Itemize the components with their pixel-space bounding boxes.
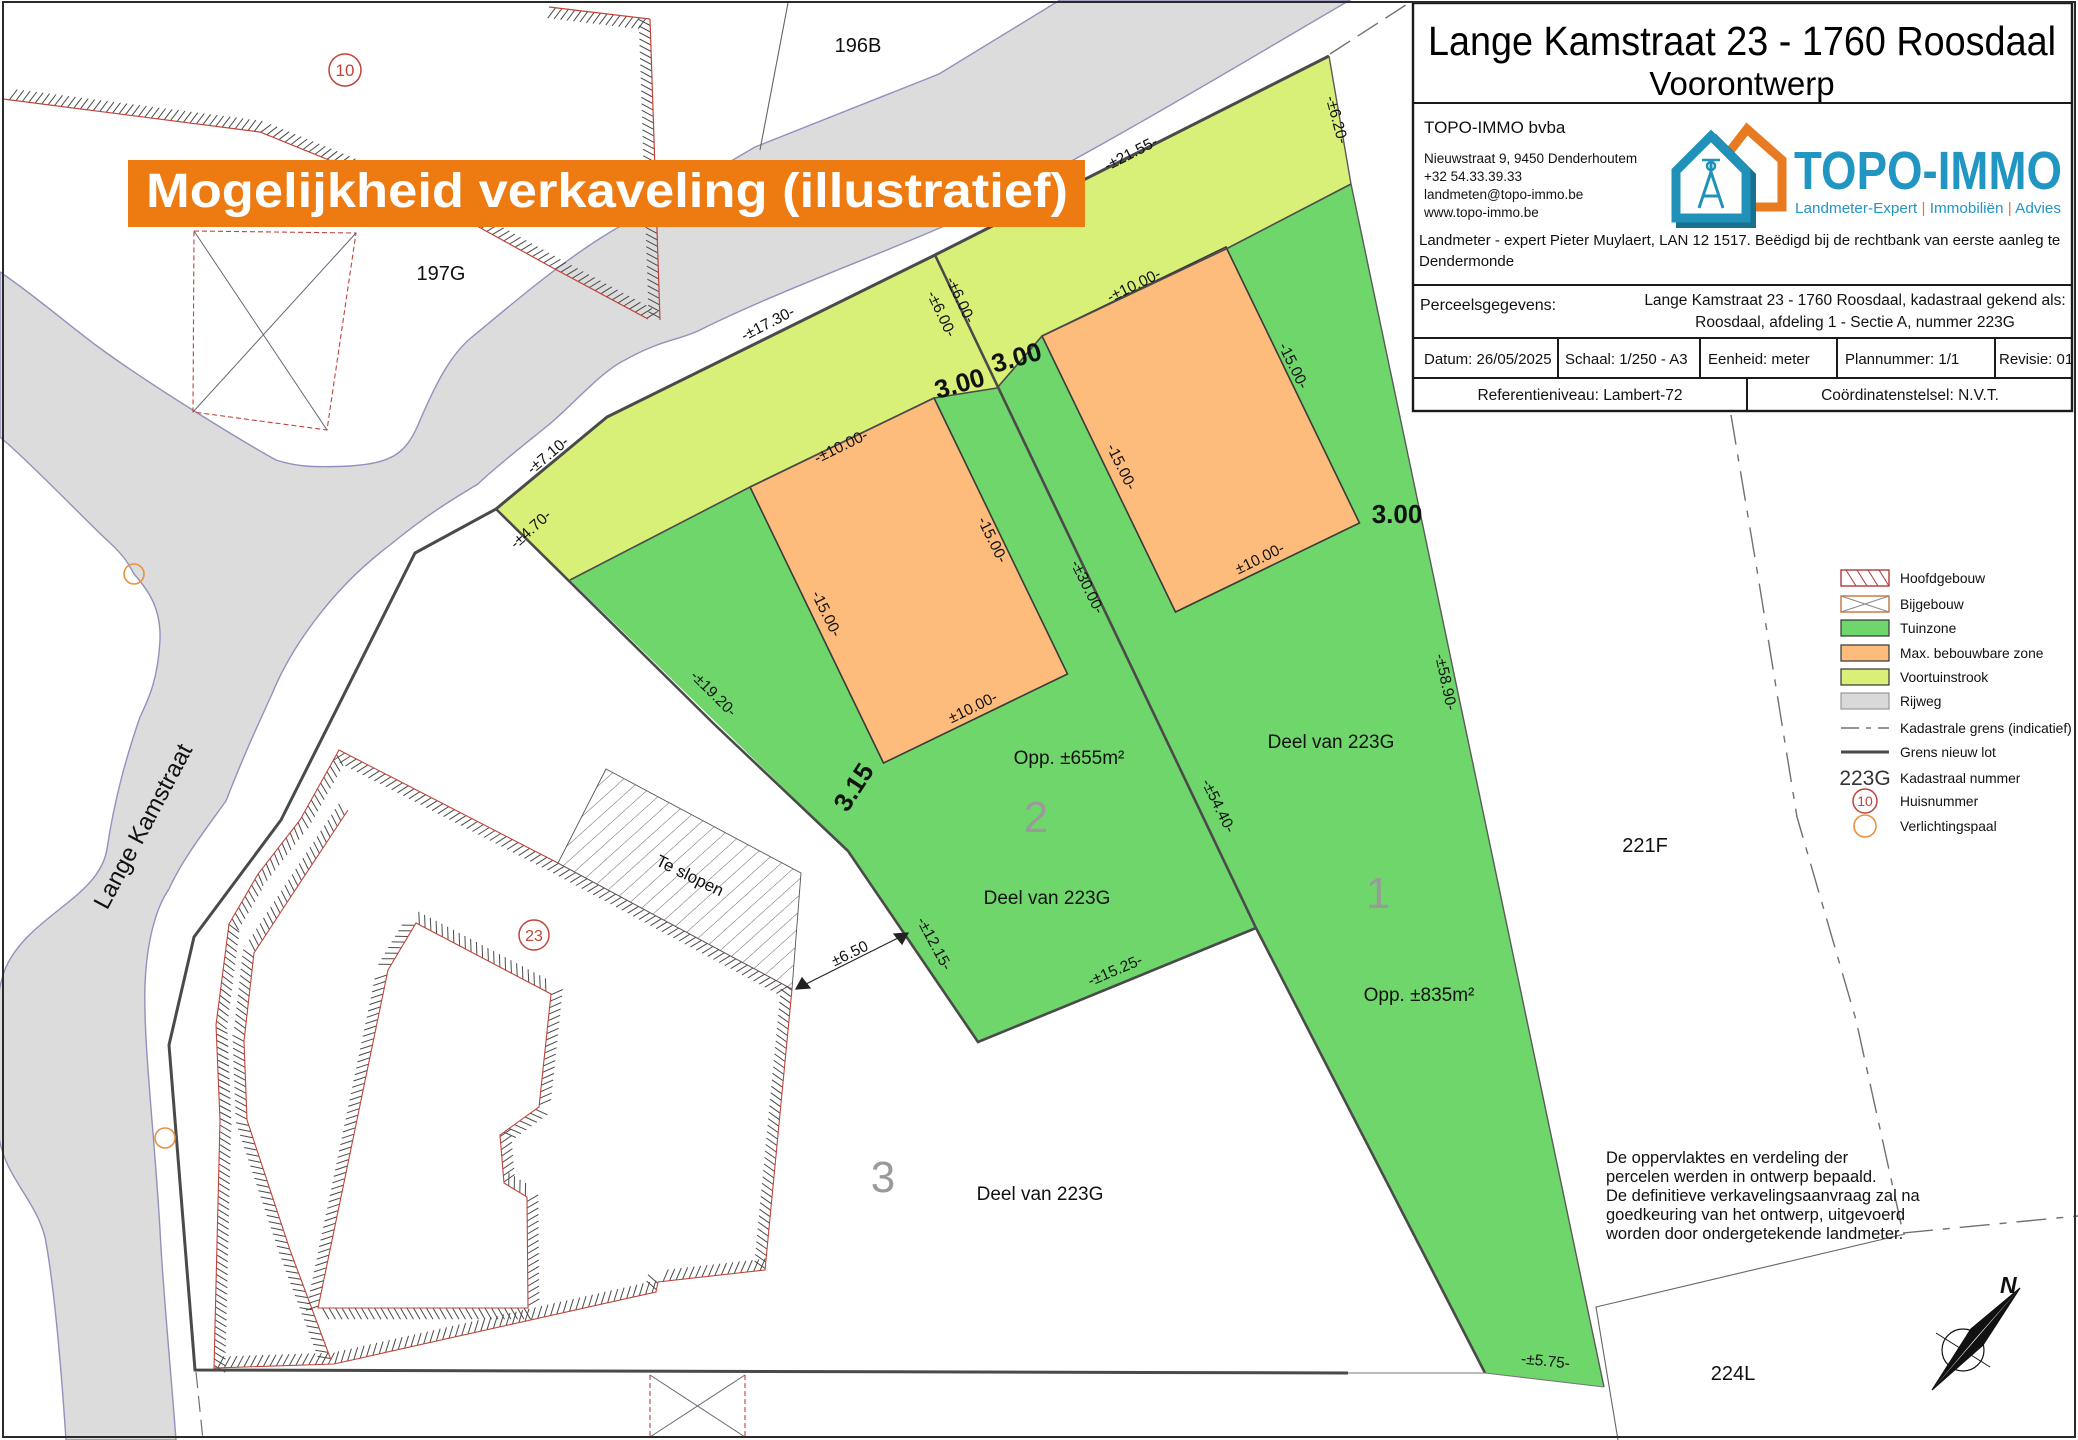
svg-text:Roosdaal, afdeling 1 - Sectie: Roosdaal, afdeling 1 - Sectie A, nummer … — [1695, 314, 2015, 331]
svg-text:De definitieve verkavelingsaan: De definitieve verkavelingsaanvraag zal … — [1606, 1187, 1921, 1205]
svg-text:+32 54.33.39.33: +32 54.33.39.33 — [1424, 169, 1522, 184]
svg-text:goedkeuring van het ontwerp, u: goedkeuring van het ontwerp, uitgevoerd — [1606, 1206, 1905, 1224]
svg-text:Deel van 223G: Deel van 223G — [1268, 732, 1395, 753]
svg-text:Datum: 26/05/2025: Datum: 26/05/2025 — [1424, 351, 1552, 368]
svg-text:Landmeter-Expert | Immobiliën: Landmeter-Expert | Immobiliën | Advies — [1795, 200, 2061, 217]
svg-text:Huisnummer: Huisnummer — [1900, 794, 1979, 809]
svg-text:Lange Kamstraat 23 - 1760 Roos: Lange Kamstraat 23 - 1760 Roosdaal — [1428, 18, 2056, 64]
svg-text:Max. bebouwbare zone: Max. bebouwbare zone — [1900, 646, 2044, 661]
svg-text:Kadastraal nummer: Kadastraal nummer — [1900, 771, 2021, 786]
svg-text:Mogelijkheid verkaveling (illu: Mogelijkheid verkaveling (illustratief) — [146, 165, 1068, 218]
svg-text:percelen werden in ontwerp bep: percelen werden in ontwerp bepaald. — [1606, 1168, 1877, 1186]
svg-text:223G: 223G — [1839, 767, 1890, 790]
svg-text:www.topo-immo.be: www.topo-immo.be — [1423, 205, 1539, 220]
svg-text:Hoofdgebouw: Hoofdgebouw — [1900, 571, 1985, 586]
svg-text:3.00: 3.00 — [1372, 499, 1423, 529]
svg-text:221F: 221F — [1622, 835, 1668, 857]
svg-text:landmeten@topo-immo.be: landmeten@topo-immo.be — [1424, 187, 1583, 202]
svg-text:Deel van 223G: Deel van 223G — [984, 888, 1111, 909]
svg-text:Referentieniveau: Lambert-72: Referentieniveau: Lambert-72 — [1477, 387, 1682, 404]
svg-text:Plannummer: 1/1: Plannummer: 1/1 — [1845, 351, 1959, 368]
svg-text:Voorontwerp: Voorontwerp — [1649, 65, 1834, 102]
svg-text:2: 2 — [1024, 793, 1048, 842]
svg-text:Verlichtingspaal: Verlichtingspaal — [1900, 819, 1997, 834]
svg-text:Kadastrale grens (indicatief): Kadastrale grens (indicatief) — [1900, 721, 2072, 736]
svg-text:10: 10 — [336, 61, 355, 80]
svg-text:224L: 224L — [1711, 1363, 1756, 1385]
svg-text:Tuinzone: Tuinzone — [1900, 621, 1957, 636]
svg-text:worden door ondergetekende lan: worden door ondergetekende landmeter. — [1605, 1225, 1903, 1243]
svg-text:Opp. ±655m²: Opp. ±655m² — [1014, 748, 1125, 769]
svg-text:De oppervlaktes en verdeling d: De oppervlaktes en verdeling der — [1606, 1149, 1849, 1167]
svg-text:10: 10 — [1857, 793, 1873, 809]
svg-text:Lange Kamstraat 23 - 1760 Roos: Lange Kamstraat 23 - 1760 Roosdaal, kada… — [1644, 292, 2065, 309]
svg-text:TOPO-IMMO bvba: TOPO-IMMO bvba — [1424, 118, 1566, 137]
svg-text:TOPO-IMMO: TOPO-IMMO — [1794, 141, 2062, 201]
svg-text:N: N — [2000, 1272, 2017, 1298]
svg-text:197G: 197G — [417, 263, 466, 285]
svg-text:Revisie: 01: Revisie: 01 — [1999, 351, 2073, 368]
svg-text:Dendermonde: Dendermonde — [1419, 253, 1514, 270]
svg-text:1: 1 — [1366, 869, 1390, 918]
svg-text:Rijweg: Rijweg — [1900, 694, 1941, 709]
svg-text:Grens nieuw lot: Grens nieuw lot — [1900, 745, 1996, 760]
svg-text:Coördinatenstelsel: N.V.T.: Coördinatenstelsel: N.V.T. — [1821, 387, 1999, 404]
svg-text:Schaal: 1/250 - A3: Schaal: 1/250 - A3 — [1565, 351, 1688, 368]
svg-text:Landmeter - expert Pieter Muyl: Landmeter - expert Pieter Muylaert, LAN … — [1419, 232, 2060, 249]
svg-text:196B: 196B — [835, 35, 882, 57]
svg-text:Opp. ±835m²: Opp. ±835m² — [1364, 985, 1475, 1006]
svg-text:Bijgebouw: Bijgebouw — [1900, 597, 1964, 612]
svg-text:23: 23 — [525, 928, 543, 945]
svg-text:Deel van 223G: Deel van 223G — [977, 1184, 1104, 1205]
svg-text:Perceelsgegevens:: Perceelsgegevens: — [1420, 297, 1556, 314]
svg-text:Eenheid: meter: Eenheid: meter — [1708, 351, 1810, 368]
svg-text:3: 3 — [871, 1153, 895, 1202]
svg-text:Voortuinstrook: Voortuinstrook — [1900, 670, 1988, 685]
svg-text:Nieuwstraat 9, 9450 Denderhout: Nieuwstraat 9, 9450 Denderhoutem — [1424, 151, 1637, 166]
